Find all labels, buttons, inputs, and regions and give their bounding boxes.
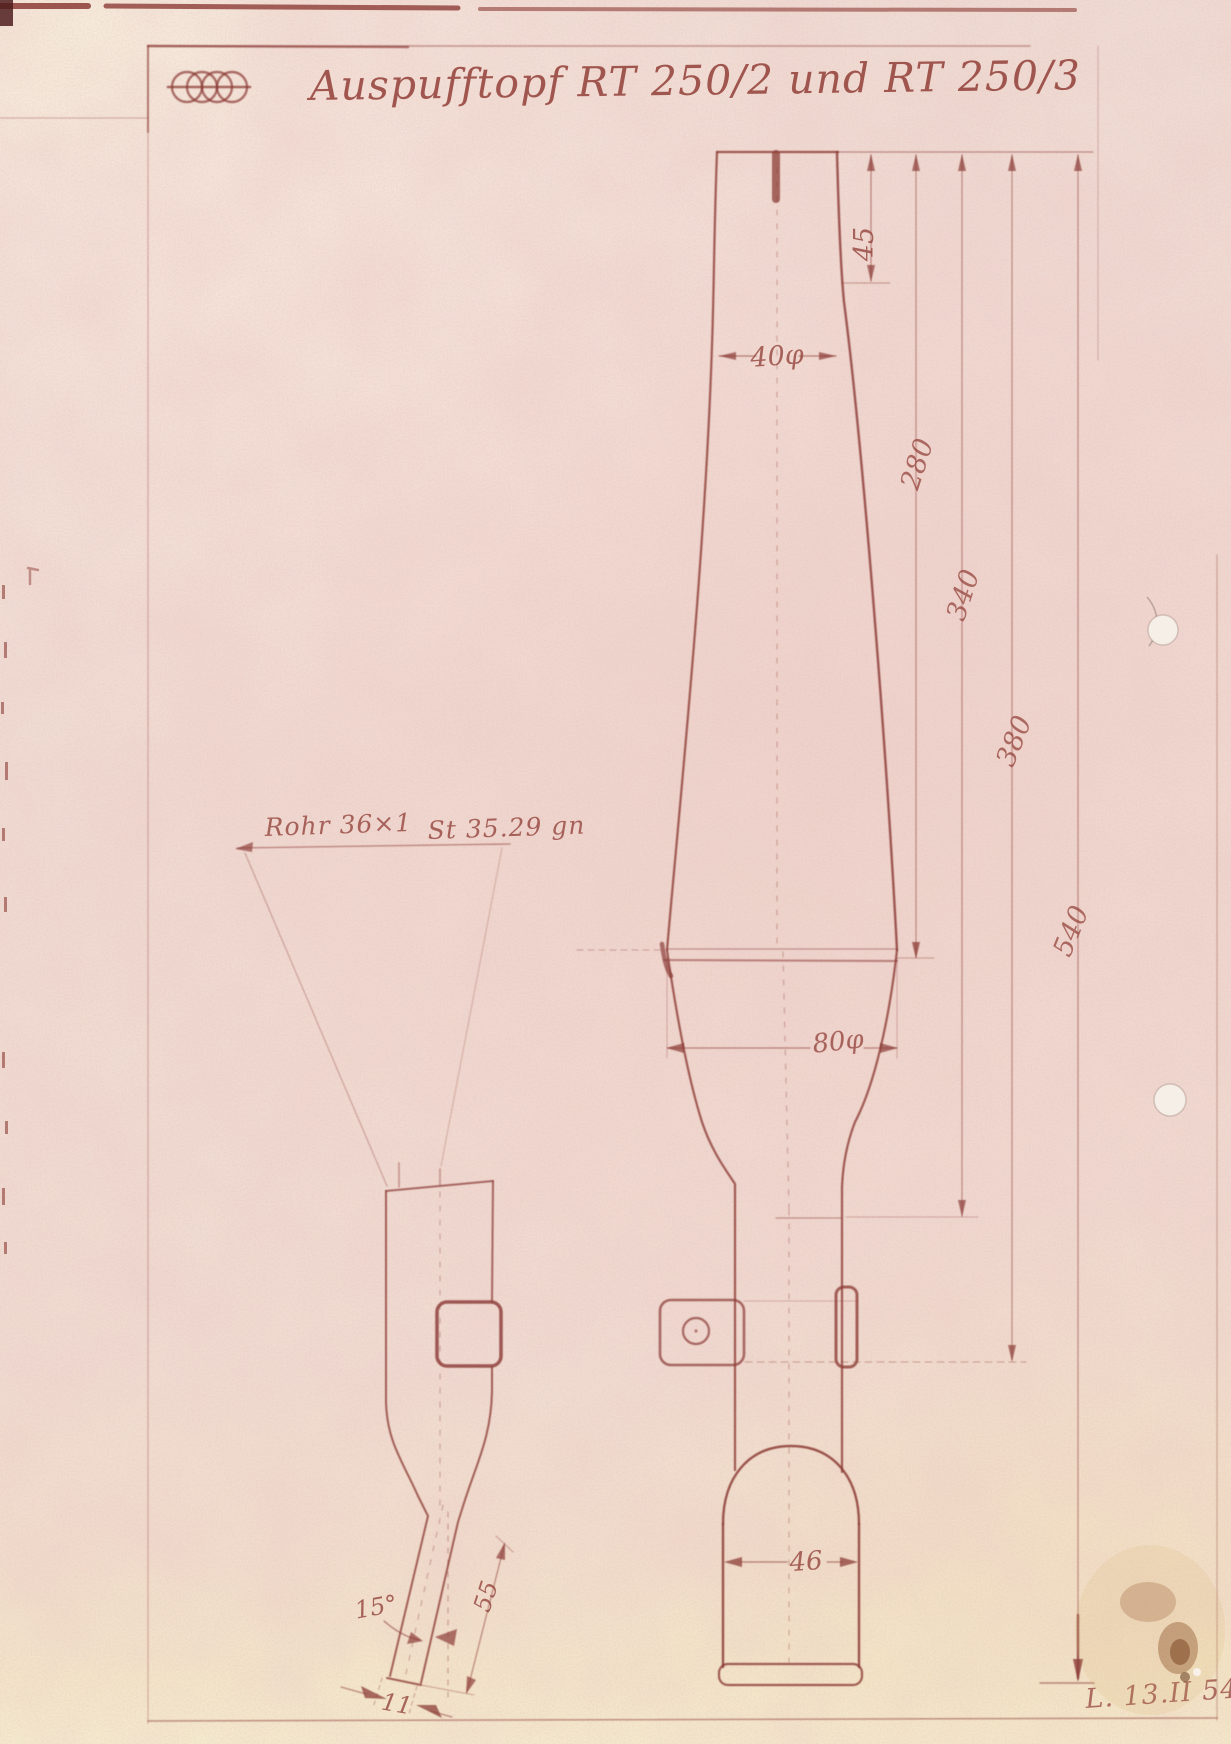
note-tube: Rohr 36×1 [263, 808, 412, 842]
punch-hole-top [1148, 615, 1178, 645]
stain-smudge [1120, 1582, 1176, 1622]
stain-halo [1075, 1545, 1225, 1715]
stain-dot [1180, 1672, 1190, 1682]
paper-grain-texture [0, 0, 1231, 1744]
note-material: St 35.29 gn [427, 811, 586, 845]
punch-hole-bottom [1154, 1084, 1186, 1116]
paper-chip [1193, 1668, 1201, 1676]
dim-label-tail-width: 46 [788, 1546, 824, 1578]
drawing-sheet: Auspufftopf RT 250/2 und RT 250/3 [0, 0, 1231, 1744]
scan-layer: Auspufftopf RT 250/2 und RT 250/3 [0, 0, 1231, 1744]
dim-label-tip-width: 11 [379, 1688, 414, 1721]
dim-label-inlet-diameter: 40φ [748, 339, 804, 374]
dim-label-inlet-length: 45 [849, 227, 880, 262]
stain-blot-core [1170, 1639, 1190, 1665]
dim-label-body-diameter: 80φ [811, 1024, 866, 1059]
